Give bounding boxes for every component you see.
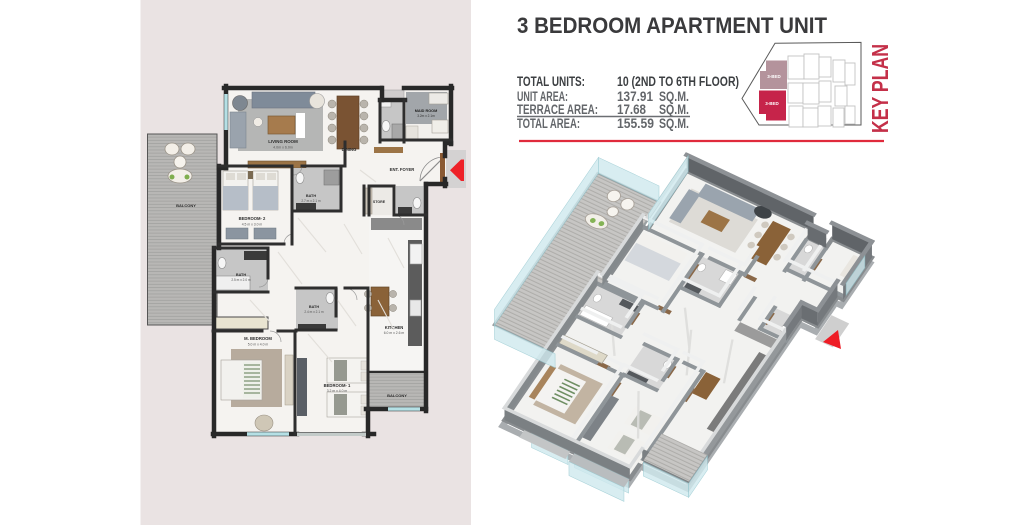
svg-text:155.59: 155.59: [617, 116, 654, 131]
svg-text:BEDROOM- 1: BEDROOM- 1: [324, 383, 351, 388]
svg-text:3-BED: 3-BED: [765, 101, 779, 106]
svg-text:10 (2ND TO 6TH FLOOR): 10 (2ND TO 6TH FLOOR): [617, 74, 739, 89]
svg-text:BALCONY: BALCONY: [387, 393, 407, 398]
svg-text:3.2 m x 4.0 m: 3.2 m x 4.0 m: [327, 389, 348, 393]
svg-text:KEY PLAN: KEY PLAN: [867, 44, 893, 133]
svg-text:6.0 m x 2.6 m: 6.0 m x 2.6 m: [384, 331, 405, 335]
svg-text:4.5 m x 3.0 m: 4.5 m x 3.0 m: [242, 222, 263, 226]
svg-text:MAID ROOM: MAID ROOM: [415, 109, 438, 113]
svg-text:STORE: STORE: [373, 200, 386, 204]
svg-text:TERRACE AREA:: TERRACE AREA:: [517, 102, 598, 117]
svg-text:3.2m x 2.1m: 3.2m x 2.1m: [417, 114, 435, 118]
svg-text:BEDROOM- 2: BEDROOM- 2: [239, 216, 266, 221]
svg-text:TOTAL AREA:: TOTAL AREA:: [517, 116, 580, 131]
svg-text:M. BEDROOM: M. BEDROOM: [244, 336, 272, 341]
svg-text:BALCONY: BALCONY: [176, 203, 196, 208]
svg-text:SQ.M.: SQ.M.: [659, 102, 689, 117]
svg-text:2.7 m x 2.1 m: 2.7 m x 2.1 m: [301, 199, 321, 203]
svg-text:3 BEDROOM APARTMENT UNIT: 3 BEDROOM APARTMENT UNIT: [517, 13, 828, 38]
svg-text:ENT. FOYER: ENT. FOYER: [390, 167, 415, 172]
svg-text:3-BED: 3-BED: [767, 74, 781, 79]
svg-text:5.0 m x 4.0 m: 5.0 m x 4.0 m: [248, 342, 269, 346]
svg-text:SQ.M.: SQ.M.: [659, 116, 689, 131]
svg-text:BATH: BATH: [306, 194, 317, 198]
svg-text:BATH: BATH: [309, 305, 320, 309]
svg-text:LIVING ROOM: LIVING ROOM: [268, 139, 298, 144]
svg-text:BATH: BATH: [236, 273, 247, 277]
svg-text:17.68: 17.68: [617, 102, 646, 117]
svg-text:TOTAL UNITS:: TOTAL UNITS:: [517, 74, 585, 89]
svg-text:2.5 m x 2.0 m: 2.5 m x 2.0 m: [231, 278, 251, 282]
svg-text:4.0m x 6.0m: 4.0m x 6.0m: [273, 146, 293, 150]
svg-text:2.4 m x 2.1 m: 2.4 m x 2.1 m: [304, 310, 324, 314]
